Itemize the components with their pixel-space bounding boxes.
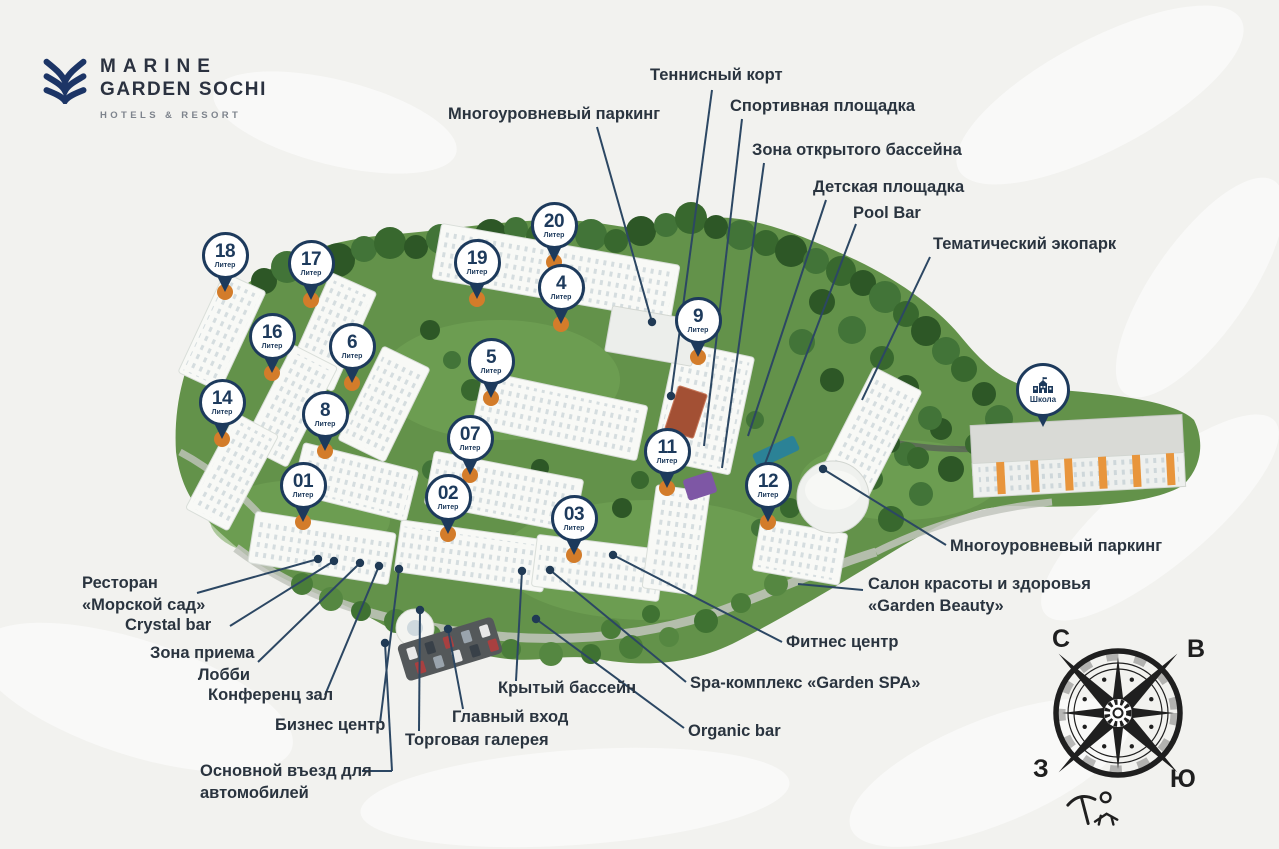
callout-conference-hall: Конференц зал xyxy=(208,684,333,706)
callout-garden-spa: Spa-комплекс «Garden SPA» xyxy=(690,672,920,694)
callout-line: «Garden Beauty» xyxy=(868,595,1091,617)
brand-line2: GARDEN SOCHI xyxy=(100,79,267,101)
brand-tagline: HOTELS & RESORT xyxy=(100,110,267,121)
callout-indoor-pool: Крытый бассейн xyxy=(498,677,636,699)
callout-line: Теннисный корт xyxy=(650,64,783,86)
callout-playground: Детская площадка xyxy=(813,176,964,198)
callout-business-center: Бизнес центр xyxy=(275,714,385,736)
resort-masterplan-poster: MARINE GARDEN SOCHI HOTELS & RESORT 20Ли… xyxy=(0,0,1279,849)
callout-line: Многоуровневый паркинг xyxy=(950,535,1162,557)
callout-line: Многоуровневый паркинг xyxy=(448,103,660,125)
callout-main-entrance: Главный вход xyxy=(452,706,568,728)
callout-line: Крытый бассейн xyxy=(498,677,636,699)
callout-multilevel-parking-top: Многоуровневый паркинг xyxy=(448,103,660,125)
callout-eco-park: Тематический экопарк xyxy=(933,233,1116,255)
callout-organic-bar: Organic bar xyxy=(688,720,781,742)
brand-header: MARINE GARDEN SOCHI HOTELS & RESORT xyxy=(42,56,267,121)
callout-line: Спортивная площадка xyxy=(730,95,915,117)
callout-garden-beauty-salon: Салон красоты и здоровья«Garden Beauty» xyxy=(868,573,1091,618)
callout-line: Зона открытого бассейна xyxy=(752,139,962,161)
callout-sports-ground: Спортивная площадка xyxy=(730,95,915,117)
callout-line: Торговая галерея xyxy=(405,729,549,751)
callout-line: Детская площадка xyxy=(813,176,964,198)
callout-sea-garden-restaurant: Ресторан«Морской сад» xyxy=(82,572,205,617)
callout-multilevel-parking-right: Многоуровневый паркинг xyxy=(950,535,1162,557)
callout-line: Organic bar xyxy=(688,720,781,742)
callout-main-car-entrance: Основной въезд дляавтомобилей xyxy=(200,760,372,805)
brand-line1: MARINE xyxy=(100,56,267,78)
callout-line: автомобилей xyxy=(200,782,372,804)
compass-north-label: С xyxy=(1052,625,1070,654)
compass-rose: С В З Ю xyxy=(1030,620,1220,845)
callout-line: Главный вход xyxy=(452,706,568,728)
callout-fitness-center: Фитнес центр xyxy=(786,631,898,653)
callout-line: Конференц зал xyxy=(208,684,333,706)
callout-line: Pool Bar xyxy=(853,202,921,224)
compass-east-label: В xyxy=(1187,635,1205,664)
callout-line: Зона приема xyxy=(150,642,250,664)
callout-tennis-court: Теннисный корт xyxy=(650,64,783,86)
brand-text: MARINE GARDEN SOCHI HOTELS & RESORT xyxy=(100,56,267,121)
compass-west-label: З xyxy=(1033,755,1049,784)
callout-line: Crystal bar xyxy=(125,614,211,636)
callout-crystal-bar: Crystal bar xyxy=(125,614,211,636)
callout-outdoor-pool-zone: Зона открытого бассейна xyxy=(752,139,962,161)
callout-line: Spa-комплекс «Garden SPA» xyxy=(690,672,920,694)
marine-garden-logo-icon xyxy=(42,58,88,104)
callout-line: Ресторан xyxy=(82,572,205,594)
callout-pool-bar: Pool Bar xyxy=(853,202,921,224)
callout-line: Фитнес центр xyxy=(786,631,898,653)
callout-line: Основной въезд для xyxy=(200,760,372,782)
callout-reception-lobby: Зона приемаЛобби xyxy=(150,642,250,687)
compass-south-label: Ю xyxy=(1170,765,1196,794)
callout-shopping-gallery: Торговая галерея xyxy=(405,729,549,751)
beach-umbrella-icon xyxy=(1063,788,1125,830)
callout-line: Бизнес центр xyxy=(275,714,385,736)
callout-line: Салон красоты и здоровья xyxy=(868,573,1091,595)
callout-line: Тематический экопарк xyxy=(933,233,1116,255)
